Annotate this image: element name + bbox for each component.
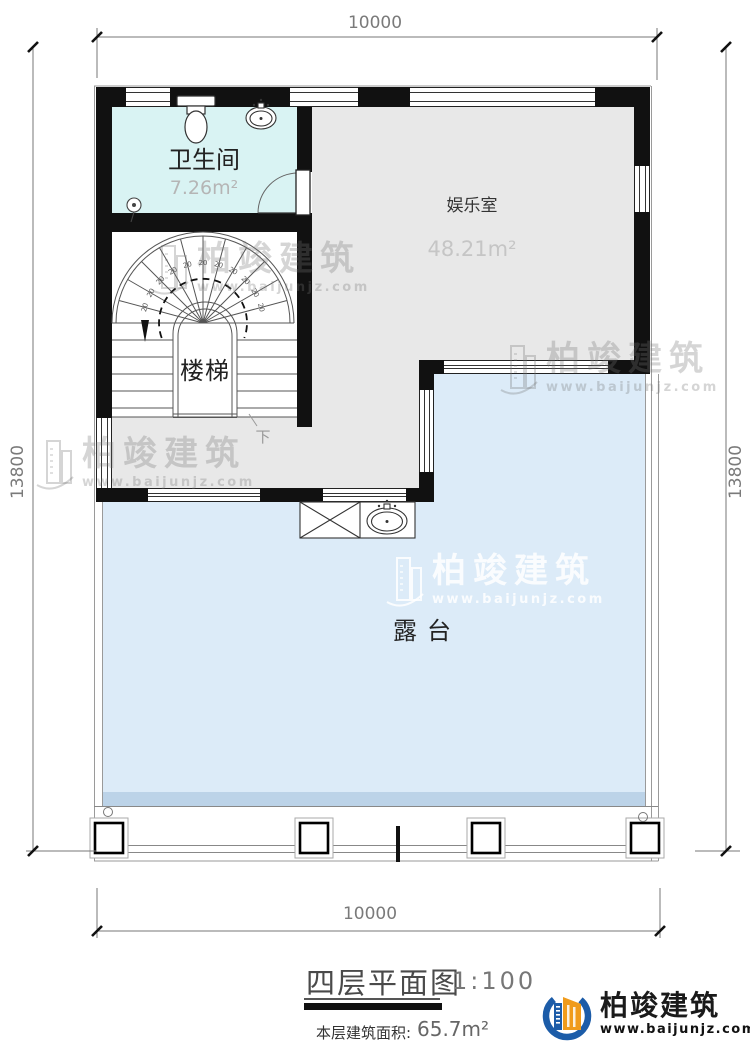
svg-text:20: 20 [227, 265, 239, 276]
pillar [467, 818, 505, 858]
stairs-down-arrow [141, 320, 149, 342]
svg-text:20: 20 [182, 260, 193, 270]
floor-drain-icon [127, 198, 141, 222]
door-leaf [296, 170, 310, 215]
floor-plan-canvas: 20 20 20 20 20 20 20 20 20 20 20 [0, 0, 750, 1053]
plan-linework: 20 20 20 20 20 20 20 20 20 20 20 [0, 0, 750, 1053]
dimension-left: 13800 [8, 437, 28, 507]
svg-text:20: 20 [249, 287, 260, 299]
svg-text:20: 20 [199, 259, 208, 267]
dimension-lines [26, 28, 740, 938]
svg-text:20: 20 [145, 287, 156, 299]
room-label-entertainment: 娱乐室 [425, 191, 519, 216]
room-label-terrace: 露台 [382, 611, 472, 646]
terrace-railing [94, 807, 658, 853]
door-swing-arc [258, 173, 298, 213]
brand-name: 柏竣建筑 [600, 991, 750, 1022]
room-area-bathroom: 7.26m² [158, 177, 250, 199]
floor-area-label: 本层建筑面积: [316, 1022, 411, 1043]
drawing-scale: 1:100 [452, 967, 536, 995]
railing-pillars [90, 808, 664, 863]
dimension-ticks [28, 32, 731, 936]
svg-text:20: 20 [256, 302, 266, 313]
svg-text:20: 20 [140, 302, 150, 313]
stairs-down-label: 下 [248, 426, 278, 447]
toilet-icon [177, 96, 215, 143]
down-label-leader [249, 414, 257, 426]
floor-area-value: 65.7m² [417, 1017, 489, 1041]
bathroom-door [258, 170, 310, 215]
pillar [90, 818, 128, 858]
dimension-top: 10000 [340, 13, 410, 33]
dimension-right: 13800 [726, 437, 746, 507]
dimension-bottom: 10000 [335, 904, 405, 924]
pillar [295, 818, 333, 858]
bathroom-sink-icon [246, 99, 276, 129]
pillar [626, 818, 664, 858]
outer-face-lines [94, 86, 659, 861]
brand-url: www.baijunjz.com [600, 1022, 750, 1037]
drawing-title: 四层平面图 [306, 960, 461, 1002]
room-label-bathroom: 卫生间 [158, 140, 250, 175]
svg-text:20: 20 [213, 260, 224, 270]
title-underline-thin [304, 998, 440, 1000]
brand-logo-icon [540, 985, 594, 1043]
terrace-counter-sink [300, 500, 415, 538]
terrace-drain-left [104, 808, 113, 817]
title-underline-thick [304, 1003, 442, 1010]
brand-logo: 柏竣建筑 www.baijunjz.com [540, 985, 750, 1043]
svg-text:20: 20 [167, 265, 179, 276]
room-area-entertainment: 48.21m² [420, 237, 524, 261]
railing-gate-mark [396, 826, 400, 862]
room-label-stairs: 楼梯 [170, 351, 240, 386]
